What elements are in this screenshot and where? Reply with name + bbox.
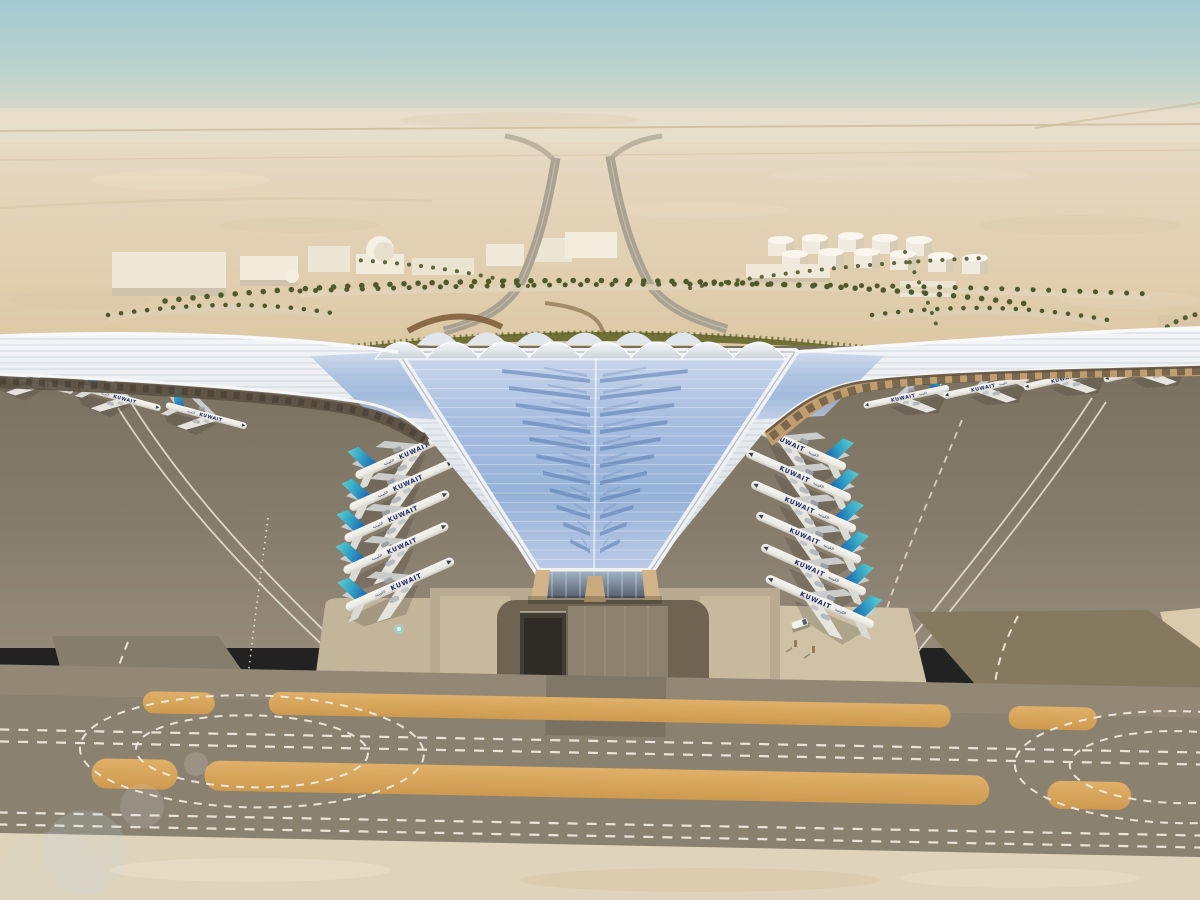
entrance-ground-shadow <box>528 596 662 604</box>
airport-rendering: Aerial rendering of Kuwait International… <box>0 0 1200 900</box>
dome-small <box>285 269 299 283</box>
central-entrance <box>528 570 662 604</box>
storage-tank <box>928 252 954 272</box>
scene-rendering: Aerial rendering of Kuwait International… <box>0 0 1200 900</box>
dome-large-shade <box>374 242 394 262</box>
taxiway-band <box>0 664 1200 860</box>
storage-tank <box>890 250 916 270</box>
